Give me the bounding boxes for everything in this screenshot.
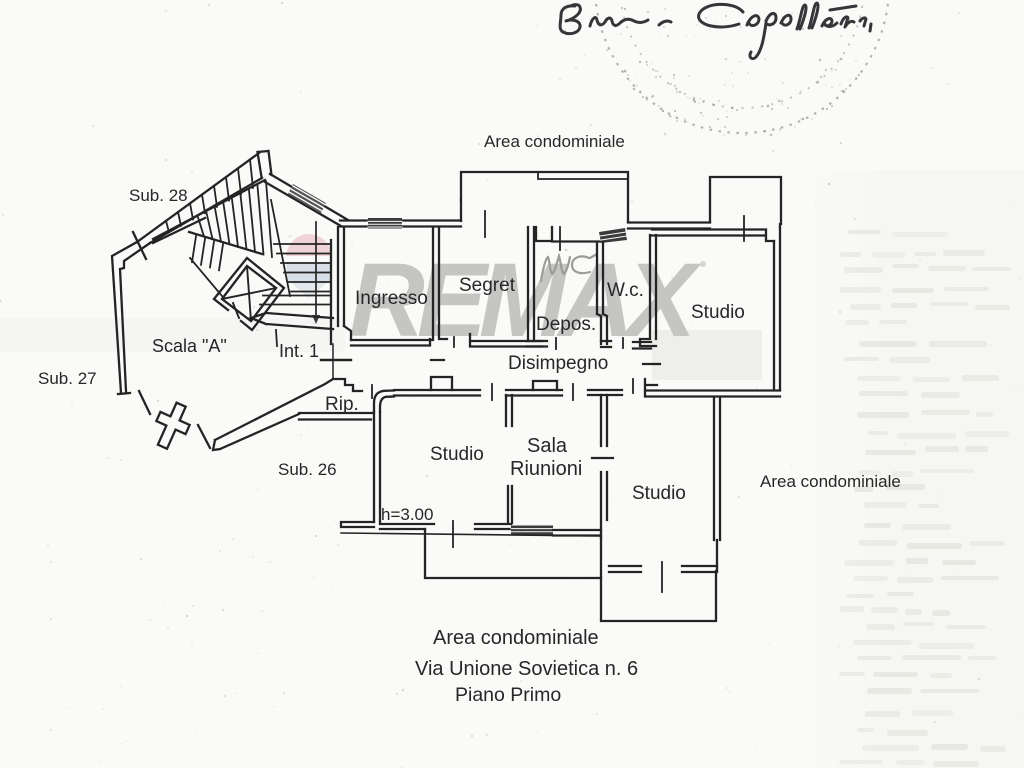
svg-text:Ingresso: Ingresso <box>355 288 428 309</box>
svg-text:Sub. 27: Sub. 27 <box>38 369 97 388</box>
svg-text:Scala "A": Scala "A" <box>152 336 227 356</box>
svg-text:Riunioni: Riunioni <box>510 458 582 480</box>
svg-text:Area condominiale: Area condominiale <box>433 627 599 649</box>
svg-text:Studio: Studio <box>691 302 745 323</box>
svg-text:Depos.: Depos. <box>536 314 596 335</box>
svg-text:Area condominiale: Area condominiale <box>484 132 625 151</box>
svg-text:Disimpegno: Disimpegno <box>508 353 608 374</box>
svg-text:Int. 1: Int. 1 <box>279 341 319 361</box>
svg-text:Segret: Segret <box>459 275 516 296</box>
svg-text:Piano Primo: Piano Primo <box>455 684 561 706</box>
svg-text:Sala: Sala <box>527 435 568 457</box>
svg-text:h=3.00: h=3.00 <box>381 505 433 524</box>
svg-text:Studio: Studio <box>430 444 484 465</box>
svg-text:Sub. 26: Sub. 26 <box>278 460 337 479</box>
svg-text:W.c.: W.c. <box>607 280 644 301</box>
svg-text:Area condominiale: Area condominiale <box>760 472 901 491</box>
svg-text:Studio: Studio <box>632 483 686 504</box>
svg-text:Via Unione Sovietica n. 6: Via Unione Sovietica n. 6 <box>415 658 638 680</box>
svg-text:Sub. 28: Sub. 28 <box>129 186 188 205</box>
